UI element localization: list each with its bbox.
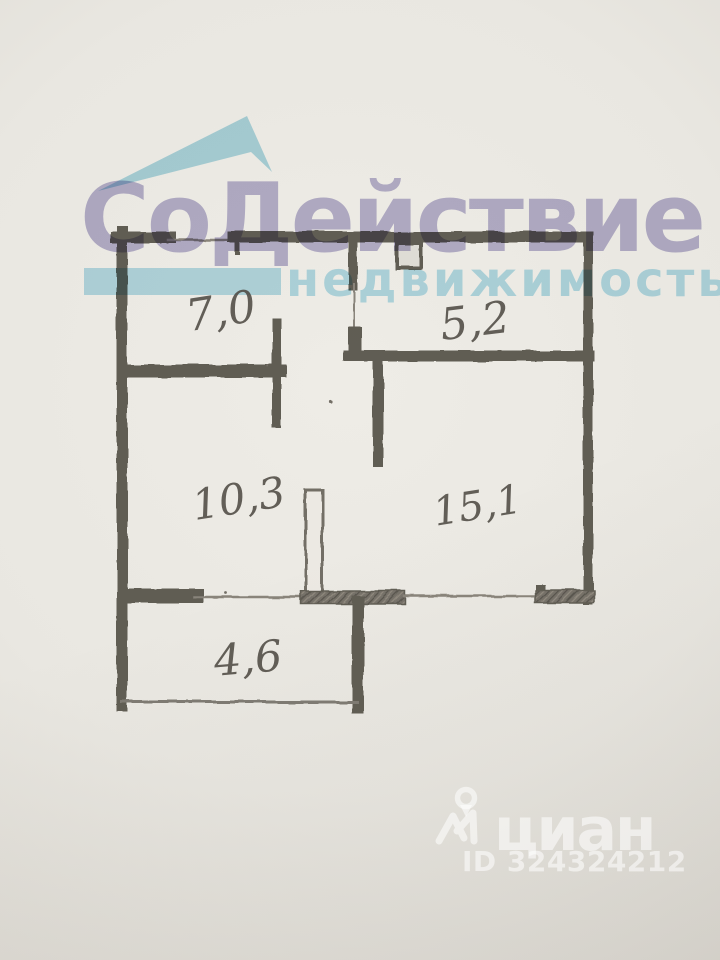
floor-plan-photo: СоДействие недвижимость 7,0 5,2 10,3 15,…: [0, 0, 720, 960]
location-pin-icon: [458, 790, 475, 807]
person-icon: [439, 813, 474, 841]
cian-listing-id: ID 324324212: [462, 848, 687, 876]
